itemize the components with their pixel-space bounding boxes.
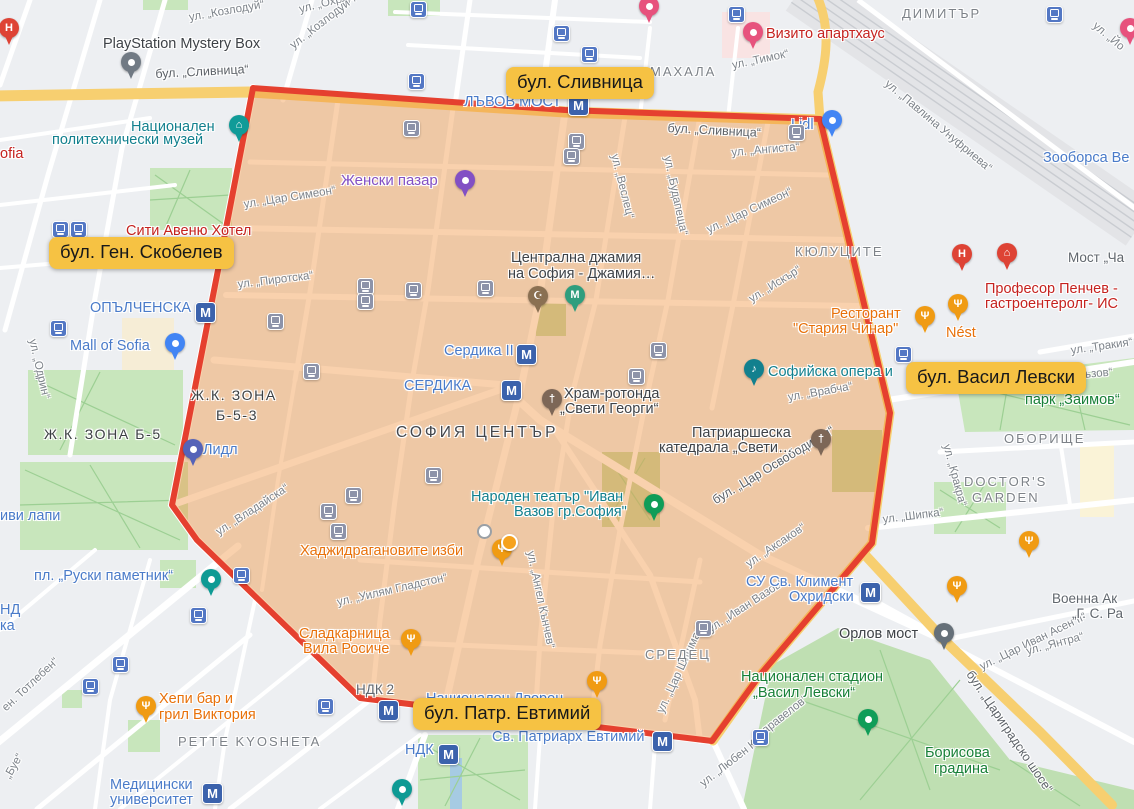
map-canvas[interactable]: ул. „Козлодуй“ул. „Охрид“ул. „Козлодуй“у…	[0, 0, 1134, 809]
map-base-tiles	[0, 0, 1134, 809]
